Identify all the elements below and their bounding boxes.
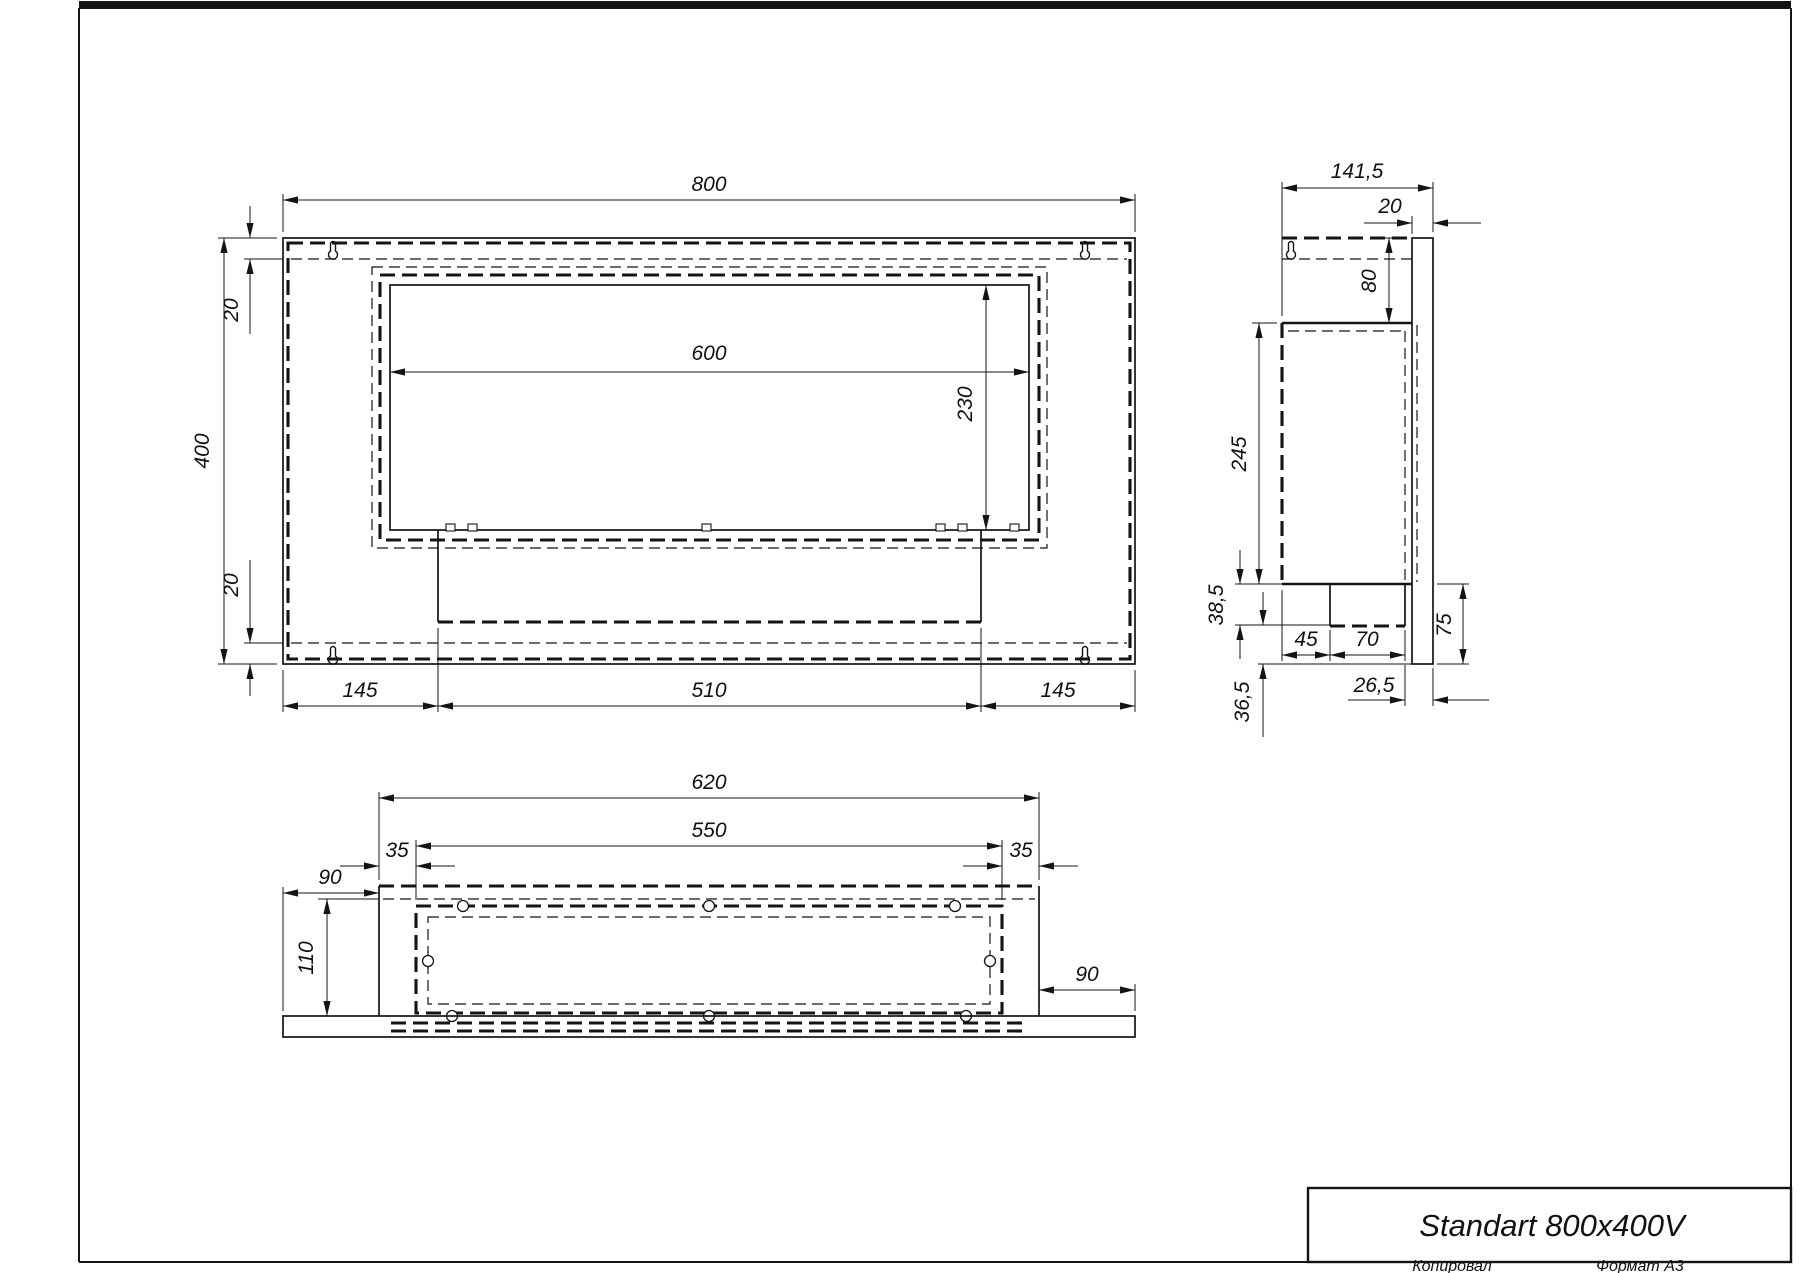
screw-holes [423, 901, 996, 1022]
side-panel-edge [1412, 238, 1433, 664]
frame-top-bar [79, 1, 1791, 9]
opening-outline [390, 285, 1029, 530]
dim-left-margin: 145 [342, 679, 377, 702]
opening-hidden-frame [380, 275, 1039, 540]
dim-tray-to-panel-bottom: 36,5 [1231, 681, 1254, 722]
dim-box-height: 245 [1228, 436, 1251, 472]
dim-opening-width: 600 [691, 342, 726, 365]
title-block: Standart 800x400V Копировал Формат А3 [1308, 1188, 1791, 1273]
bottom-mount-frame [416, 906, 1002, 1013]
side-firebox [1282, 323, 1412, 584]
burner-tray [438, 530, 981, 622]
front-view-dimensions: 800 400 20 20 600 230 [191, 173, 1135, 712]
format-label: Формат А3 [1596, 1258, 1684, 1273]
dim-front-top-inset: 20 [220, 298, 243, 323]
keyhole-icon [328, 242, 1089, 665]
side-tray [1330, 584, 1405, 626]
dim-tray-width: 70 [1355, 628, 1379, 651]
dim-front-width: 800 [691, 173, 726, 196]
dim-box-to-tray-bottom: 38,5 [1205, 584, 1228, 625]
side-view-dimensions: 141,5 20 80 245 38,5 36,5 [1205, 160, 1489, 737]
side-view: 141,5 20 80 245 38,5 36,5 [1205, 160, 1489, 737]
keyhole-icon [1287, 242, 1296, 260]
front-view: 800 400 20 20 600 230 [191, 173, 1135, 712]
copied-by-label: Копировал [1412, 1258, 1492, 1273]
bottom-mount-inner [428, 917, 990, 1004]
dim-tray-to-back: 26,5 [1353, 674, 1395, 697]
dim-right-inset: 35 [1009, 839, 1033, 862]
dim-burner-width: 510 [691, 679, 726, 702]
dim-left-inset: 35 [385, 839, 409, 862]
dim-inner-depth: 110 [295, 941, 318, 975]
opening-outer-dashed [372, 267, 1047, 548]
dim-box-width: 620 [691, 771, 726, 794]
dim-tray-offset: 45 [1294, 628, 1318, 651]
technical-drawing: 800 400 20 20 600 230 [0, 0, 1800, 1273]
dim-depth: 141,5 [1331, 160, 1384, 183]
dim-front-height: 400 [191, 433, 214, 468]
page-frame [79, 1, 1791, 1262]
dim-front-bottom-inset: 20 [220, 573, 243, 598]
dim-mount-span: 550 [691, 819, 726, 842]
front-panel-outline [283, 238, 1135, 664]
bottom-view: 620 550 35 35 90 110 90 [283, 771, 1135, 1037]
front-panel-hidden-edge [288, 243, 1130, 659]
drawing-title: Standart 800x400V [1419, 1208, 1688, 1243]
dim-right-overhang: 90 [1075, 963, 1099, 986]
bottom-view-dimensions: 620 550 35 35 90 110 90 [283, 771, 1135, 1016]
dim-panel-thickness: 20 [1377, 195, 1402, 218]
drawing-sheet: 800 400 20 20 600 230 [0, 0, 1800, 1273]
dim-below-box-height: 75 [1433, 613, 1456, 637]
dim-left-overhang: 90 [318, 866, 342, 889]
dim-opening-height: 230 [954, 386, 977, 422]
dim-panel-top-to-box: 80 [1358, 269, 1381, 293]
dim-right-margin: 145 [1040, 679, 1075, 702]
